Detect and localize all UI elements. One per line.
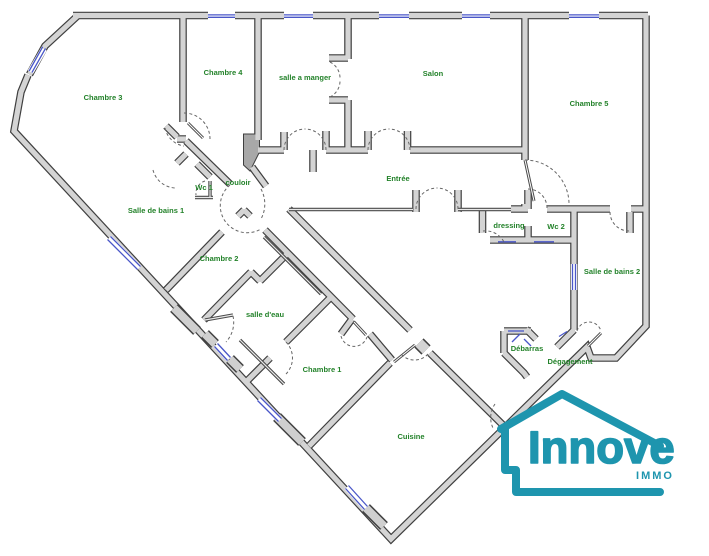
- svg-text:dressing: dressing: [493, 221, 525, 230]
- svg-text:Innove: Innove: [528, 422, 675, 473]
- svg-text:Salon: Salon: [423, 69, 444, 78]
- svg-text:Chambre 1: Chambre 1: [303, 365, 342, 374]
- svg-text:Chambre 2: Chambre 2: [200, 254, 239, 263]
- svg-text:Salle de bains 2: Salle de bains 2: [584, 267, 640, 276]
- svg-text:Chambre 5: Chambre 5: [570, 99, 609, 108]
- svg-text:salle a manger: salle a manger: [279, 73, 331, 82]
- svg-text:Wc 2: Wc 2: [547, 222, 565, 231]
- svg-text:Entrée: Entrée: [386, 174, 409, 183]
- svg-text:Salle de bains 1: Salle de bains 1: [128, 206, 184, 215]
- svg-text:couloir: couloir: [225, 178, 250, 187]
- svg-text:Dégagement: Dégagement: [547, 357, 593, 366]
- svg-text:IMMO: IMMO: [636, 470, 674, 482]
- svg-text:Chambre 4: Chambre 4: [204, 68, 244, 77]
- svg-text:Wc 1: Wc 1: [195, 183, 213, 192]
- svg-text:Chambre 3: Chambre 3: [84, 93, 123, 102]
- svg-text:salle d'eau: salle d'eau: [246, 310, 284, 319]
- svg-text:Cuisine: Cuisine: [397, 432, 424, 441]
- svg-text:Débarras: Débarras: [511, 344, 544, 353]
